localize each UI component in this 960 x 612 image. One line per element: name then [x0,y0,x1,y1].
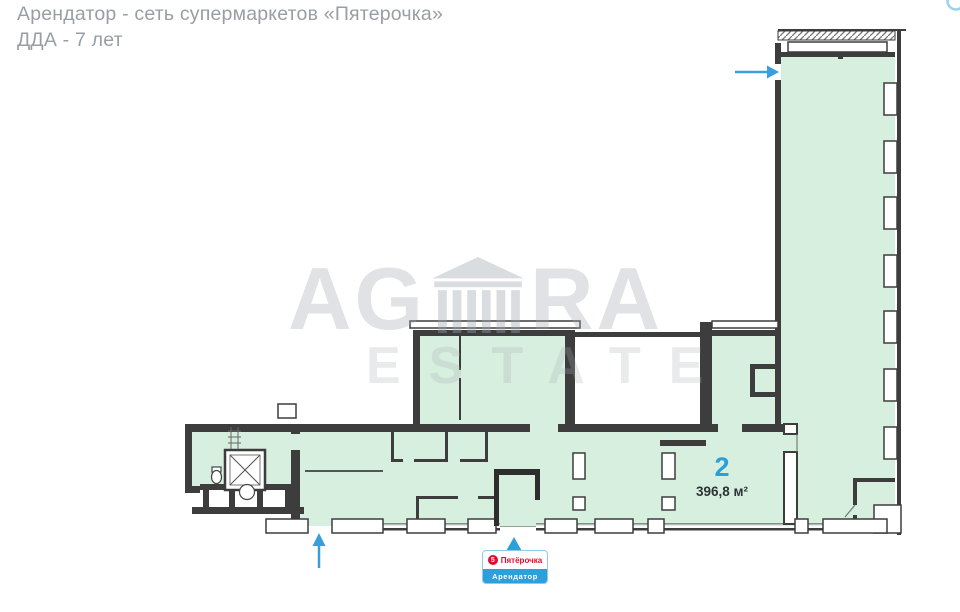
tenant-brand-name: Пятёрочка [501,556,542,565]
entry-arrow-up-icon [313,533,326,568]
corner-bubble-icon[interactable] [942,0,960,15]
elevator-icon [225,450,265,490]
sink-icon [240,485,255,500]
tenant-badge: 5 Пятёрочка Арендатор [482,550,548,584]
tenant-role-label: Арендатор [483,569,547,583]
tenant-brand-row: 5 Пятёрочка [483,551,547,569]
hatched-wall [778,31,895,40]
pyaterochka-logo-icon: 5 [488,555,498,565]
entry-arrow-right-icon [735,66,779,79]
top-vestibule [788,42,887,52]
toilet-icon [212,467,222,484]
floor-plan [0,0,960,612]
floor-plan-page: Арендатор - сеть супермаркетов «Пятерочк… [0,0,960,612]
